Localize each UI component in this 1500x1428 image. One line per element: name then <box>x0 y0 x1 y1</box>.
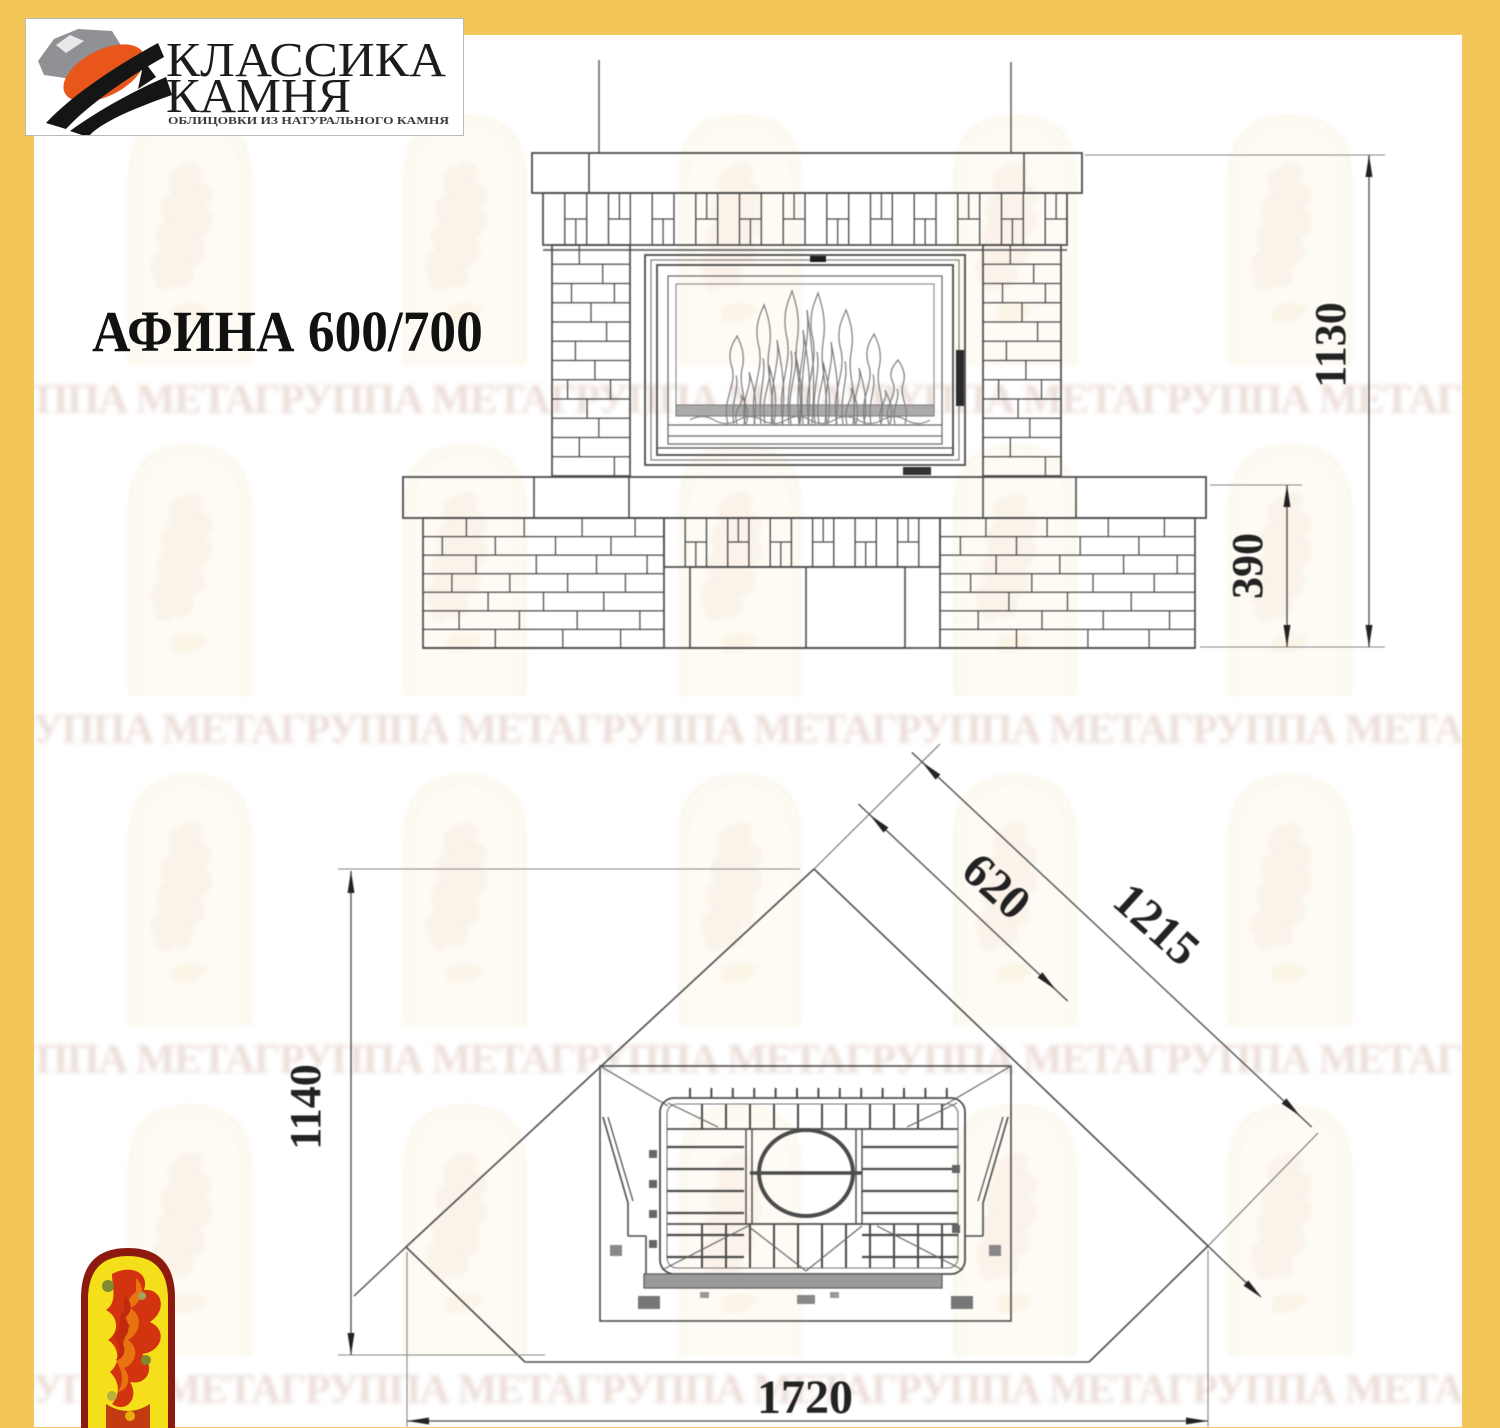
svg-text:1130: 1130 <box>1306 302 1355 388</box>
svg-text:390: 390 <box>1223 533 1272 599</box>
svg-text:1215: 1215 <box>1103 873 1210 977</box>
svg-text:1720: 1720 <box>757 1371 853 1424</box>
svg-text:ОБЛИЦОВКИ ИЗ НАТУРАЛЬНОГО КАМН: ОБЛИЦОВКИ ИЗ НАТУРАЛЬНОГО КАМНЯ <box>168 115 449 127</box>
svg-text:620: 620 <box>952 843 1041 931</box>
svg-text:1140: 1140 <box>281 1064 330 1150</box>
